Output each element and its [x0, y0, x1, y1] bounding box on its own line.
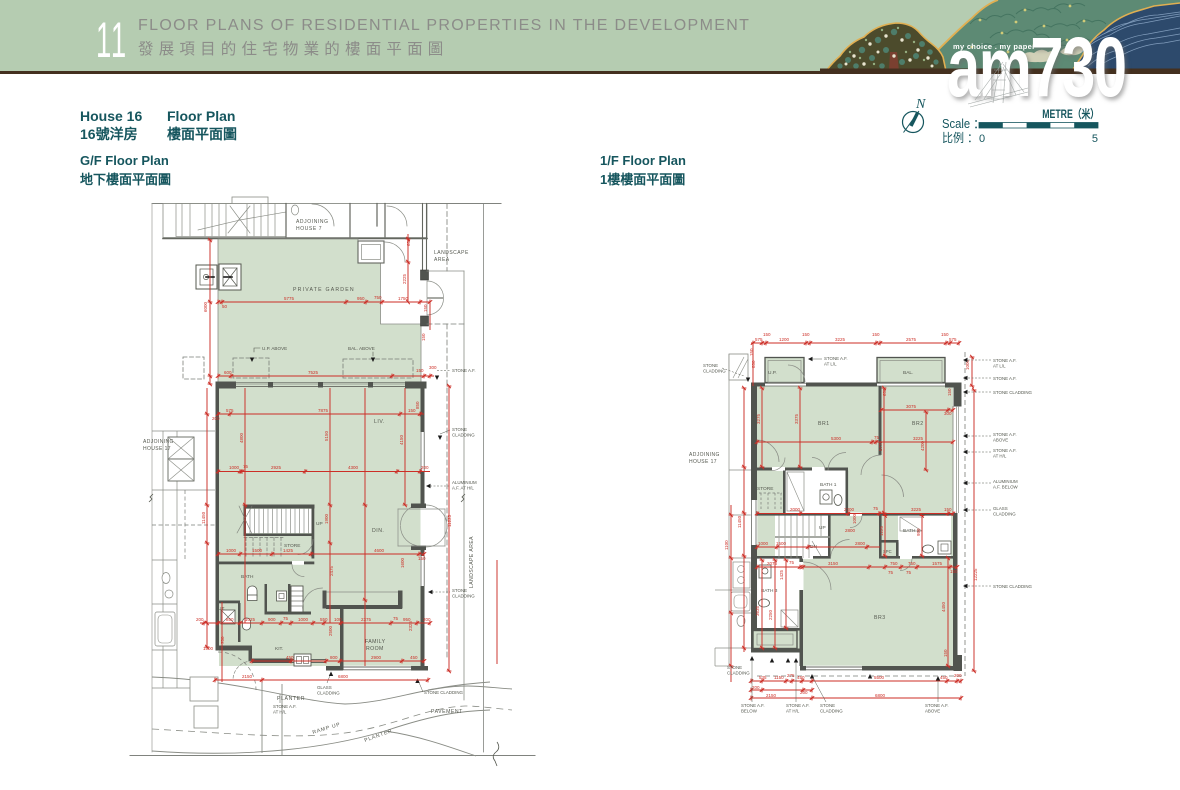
svg-text:AT L/L: AT L/L — [993, 364, 1006, 369]
svg-text:800: 800 — [330, 655, 338, 660]
svg-text:650: 650 — [882, 388, 887, 396]
svg-text:75: 75 — [888, 570, 894, 575]
svg-text:150: 150 — [941, 332, 949, 337]
svg-text:1150: 1150 — [774, 675, 784, 680]
svg-text:75: 75 — [906, 570, 912, 575]
svg-text:HOUSE 17: HOUSE 17 — [689, 459, 717, 465]
svg-text:450: 450 — [410, 655, 418, 660]
svg-text:BATH: BATH — [241, 574, 254, 580]
svg-text:100: 100 — [334, 617, 342, 622]
svg-text:750: 750 — [374, 295, 382, 300]
svg-text:950: 950 — [357, 296, 365, 301]
svg-text:6000: 6000 — [203, 301, 208, 312]
svg-text:150: 150 — [802, 332, 810, 337]
svg-text:A.F. AT H/L: A.F. AT H/L — [452, 486, 474, 491]
svg-text:STONE: STONE — [452, 427, 467, 432]
svg-text:BR2: BR2 — [912, 421, 924, 427]
svg-text:STONE A.F.: STONE A.F. — [741, 703, 765, 708]
svg-text:STONE A.F.: STONE A.F. — [786, 703, 810, 708]
svg-text:3150: 3150 — [828, 561, 839, 566]
svg-text:6800: 6800 — [338, 674, 349, 679]
svg-text:2150: 2150 — [766, 693, 777, 698]
svg-text:ROOM: ROOM — [366, 646, 384, 652]
svg-text:75: 75 — [283, 616, 289, 621]
svg-text:PAVEMENT: PAVEMENT — [431, 709, 463, 715]
svg-text:950: 950 — [916, 528, 921, 536]
svg-text:STONE A.F.: STONE A.F. — [452, 368, 476, 373]
svg-text:4600: 4600 — [374, 548, 385, 553]
svg-text:AT H/L: AT H/L — [993, 454, 1007, 459]
svg-text:150: 150 — [763, 332, 771, 337]
svg-text:2925: 2925 — [271, 465, 282, 470]
svg-text:AT H/L: AT H/L — [786, 709, 800, 714]
svg-text:PLANTER: PLANTER — [277, 696, 305, 702]
svg-text:AT H/L: AT H/L — [273, 710, 287, 715]
svg-text:2000: 2000 — [790, 507, 801, 512]
svg-text:STONE CLADDING: STONE CLADDING — [993, 584, 1033, 589]
svg-text:750: 750 — [220, 636, 225, 644]
svg-text:150: 150 — [944, 507, 952, 512]
svg-text:2300: 2300 — [844, 507, 855, 512]
svg-text:1000: 1000 — [852, 513, 857, 524]
svg-text:300: 300 — [429, 365, 437, 370]
svg-text:2150: 2150 — [242, 674, 253, 679]
svg-text:STONE CLADDING: STONE CLADDING — [993, 390, 1033, 395]
svg-text:2325: 2325 — [408, 620, 413, 631]
svg-text:STONE A.F.: STONE A.F. — [273, 704, 297, 709]
svg-text:FAMILY: FAMILY — [365, 639, 386, 645]
svg-text:11450: 11450 — [737, 515, 742, 528]
svg-text:1900: 1900 — [203, 646, 214, 651]
svg-text:200: 200 — [421, 465, 429, 470]
svg-text:3075: 3075 — [906, 404, 917, 409]
svg-text:2075: 2075 — [767, 561, 778, 566]
svg-text:275: 275 — [787, 673, 795, 678]
svg-text:5775: 5775 — [878, 440, 883, 451]
svg-text:4150: 4150 — [399, 434, 404, 445]
svg-text:150: 150 — [421, 333, 426, 341]
svg-text:AT L/L: AT L/L — [824, 362, 837, 367]
svg-text:GLASS: GLASS — [317, 685, 332, 690]
svg-text:STONE: STONE — [452, 588, 467, 593]
svg-text:3225: 3225 — [835, 337, 846, 342]
svg-text:150: 150 — [416, 368, 424, 373]
svg-text:5500: 5500 — [874, 675, 885, 680]
svg-text:1200: 1200 — [779, 337, 790, 342]
svg-text:BELOW: BELOW — [741, 709, 758, 714]
svg-text:900: 900 — [268, 617, 276, 622]
svg-text:STONE: STONE — [727, 665, 742, 670]
svg-text:KIT.: KIT. — [275, 646, 283, 652]
svg-text:BATH 1: BATH 1 — [820, 482, 837, 488]
svg-text:1000: 1000 — [226, 548, 237, 553]
svg-text:STONE CLADDING: STONE CLADDING — [424, 690, 464, 695]
svg-text:2800: 2800 — [855, 541, 866, 546]
svg-text:2375: 2375 — [361, 617, 372, 622]
svg-text:4200: 4200 — [920, 440, 925, 451]
svg-text:ALUMINIUM: ALUMINIUM — [452, 480, 477, 485]
svg-text:750: 750 — [908, 561, 916, 566]
svg-text:6800: 6800 — [875, 693, 886, 698]
svg-text:4800: 4800 — [239, 432, 244, 443]
svg-text:A.F. BELOW: A.F. BELOW — [993, 485, 1018, 490]
svg-text:2900: 2900 — [371, 655, 382, 660]
svg-text:1900: 1900 — [324, 513, 329, 524]
svg-text:850: 850 — [226, 617, 234, 622]
svg-text:150: 150 — [423, 304, 428, 312]
svg-text:STONE A.F.: STONE A.F. — [993, 358, 1017, 363]
svg-text:50: 50 — [222, 304, 228, 309]
svg-text:2225: 2225 — [402, 273, 407, 284]
svg-text:200: 200 — [423, 617, 431, 622]
svg-text:200: 200 — [196, 617, 204, 622]
svg-text:UP: UP — [819, 525, 826, 531]
svg-text:3225: 3225 — [913, 436, 924, 441]
svg-text:450: 450 — [286, 655, 294, 660]
svg-text:2575: 2575 — [906, 337, 917, 342]
svg-text:75: 75 — [873, 506, 879, 511]
svg-text:3375: 3375 — [794, 413, 799, 424]
svg-text:4300: 4300 — [348, 465, 359, 470]
svg-text:2800: 2800 — [845, 528, 856, 533]
svg-text:U.P.: U.P. — [768, 370, 777, 376]
svg-text:575: 575 — [949, 337, 957, 342]
svg-text:LANDSCAPE: LANDSCAPE — [434, 250, 469, 256]
svg-text:STONE A.F.: STONE A.F. — [993, 448, 1017, 453]
svg-text:450: 450 — [797, 675, 805, 680]
svg-text:650: 650 — [406, 238, 411, 246]
svg-text:450: 450 — [940, 675, 948, 680]
svg-text:4450: 4450 — [941, 601, 946, 612]
svg-text:STONE A.F.: STONE A.F. — [993, 432, 1017, 437]
svg-text:LIV.: LIV. — [374, 419, 385, 425]
svg-text:BR1: BR1 — [818, 421, 830, 427]
svg-text:CLADDING: CLADDING — [820, 709, 843, 714]
svg-text:LANDSCAPE AREA: LANDSCAPE AREA — [469, 536, 475, 588]
svg-text:150: 150 — [950, 569, 958, 574]
svg-text:75: 75 — [789, 560, 795, 565]
svg-text:CLADDING: CLADDING — [452, 594, 475, 599]
svg-text:575: 575 — [226, 408, 234, 413]
svg-text:5150: 5150 — [324, 430, 329, 441]
svg-text:ABOVE: ABOVE — [925, 709, 940, 714]
svg-text:550: 550 — [320, 617, 328, 622]
svg-text:BAL. ABOVE: BAL. ABOVE — [348, 346, 375, 351]
svg-text:150: 150 — [418, 556, 426, 561]
svg-text:1500: 1500 — [252, 548, 263, 553]
svg-text:PRIVATE GARDEN: PRIVATE GARDEN — [293, 287, 355, 293]
svg-text:11225: 11225 — [447, 514, 452, 527]
svg-text:ADJOINING: ADJOINING — [296, 219, 329, 225]
svg-text:CLADDING: CLADDING — [317, 691, 340, 696]
svg-text:1100: 1100 — [724, 540, 729, 550]
svg-text:2475: 2475 — [329, 565, 334, 576]
svg-text:CLADDING: CLADDING — [703, 369, 726, 374]
svg-text:CLADDING: CLADDING — [452, 433, 475, 438]
svg-text:1000: 1000 — [758, 541, 769, 546]
svg-text:STONE: STONE — [820, 703, 835, 708]
svg-text:75: 75 — [243, 464, 249, 469]
svg-text:850: 850 — [751, 360, 756, 368]
svg-text:1500: 1500 — [776, 541, 787, 546]
svg-text:150: 150 — [872, 332, 880, 337]
svg-text:150: 150 — [749, 348, 754, 356]
svg-text:GLASS: GLASS — [993, 506, 1008, 511]
svg-text:STONE A.F.: STONE A.F. — [824, 356, 848, 361]
svg-text:1600: 1600 — [400, 557, 405, 568]
svg-text:200: 200 — [800, 690, 808, 695]
svg-text:STORE: STORE — [757, 486, 773, 492]
svg-text:ADJOINING: ADJOINING — [689, 452, 720, 458]
svg-text:CLADDING: CLADDING — [727, 671, 750, 676]
svg-text:ADJOINING: ADJOINING — [143, 439, 174, 445]
svg-text:BAL.: BAL. — [903, 370, 913, 376]
svg-text:300: 300 — [944, 411, 952, 416]
svg-text:STONE A.F.: STONE A.F. — [925, 703, 949, 708]
svg-text:STONE: STONE — [703, 363, 718, 368]
svg-text:ABOVE: ABOVE — [993, 438, 1008, 443]
svg-text:575: 575 — [755, 337, 763, 342]
svg-text:3225: 3225 — [911, 507, 922, 512]
svg-text:5300: 5300 — [831, 436, 842, 441]
svg-text:750: 750 — [890, 561, 898, 566]
svg-text:ALUMINIUM: ALUMINIUM — [993, 479, 1018, 484]
svg-text:CLADDING: CLADDING — [993, 512, 1016, 517]
svg-text:1575: 1575 — [932, 561, 943, 566]
svg-text:200: 200 — [752, 685, 760, 690]
svg-text:200: 200 — [954, 673, 962, 678]
svg-text:535: 535 — [759, 675, 767, 680]
svg-text:3275: 3275 — [756, 413, 761, 424]
svg-text:600: 600 — [224, 370, 232, 375]
svg-text:2250: 2250 — [768, 609, 773, 620]
svg-text:STONE A.F.: STONE A.F. — [993, 376, 1017, 381]
svg-text:BR3: BR3 — [874, 615, 886, 621]
svg-text:75: 75 — [874, 435, 880, 440]
svg-text:1225: 1225 — [879, 525, 884, 536]
svg-text:7875: 7875 — [318, 408, 329, 413]
svg-text:DIN.: DIN. — [372, 528, 384, 534]
svg-text:1000: 1000 — [229, 465, 240, 470]
svg-text:75: 75 — [393, 616, 399, 621]
svg-text:2500: 2500 — [328, 625, 333, 636]
svg-text:12225: 12225 — [973, 568, 978, 581]
svg-text:5775: 5775 — [284, 296, 295, 301]
svg-text:3635: 3635 — [755, 605, 760, 616]
svg-text:1000: 1000 — [298, 617, 309, 622]
svg-text:200: 200 — [212, 416, 220, 421]
svg-text:HOUSE 7: HOUSE 7 — [296, 226, 322, 232]
svg-text:HOUSE 17: HOUSE 17 — [143, 446, 171, 452]
svg-text:7525: 7525 — [308, 370, 319, 375]
svg-text:11450: 11450 — [201, 511, 206, 524]
svg-text:850: 850 — [415, 401, 420, 409]
svg-text:1750: 1750 — [398, 296, 409, 301]
svg-text:1425: 1425 — [779, 569, 784, 580]
svg-text:1025: 1025 — [245, 617, 256, 622]
svg-text:U.P. ABOVE: U.P. ABOVE — [262, 346, 287, 351]
svg-text:PLANTER: PLANTER — [364, 728, 394, 744]
svg-text:AREA: AREA — [434, 257, 450, 263]
svg-text:1425: 1425 — [283, 548, 294, 553]
svg-text:150: 150 — [947, 388, 952, 396]
svg-text:UP: UP — [316, 521, 323, 527]
svg-text:150: 150 — [943, 649, 948, 657]
svg-text:SPC: SPC — [883, 549, 892, 554]
